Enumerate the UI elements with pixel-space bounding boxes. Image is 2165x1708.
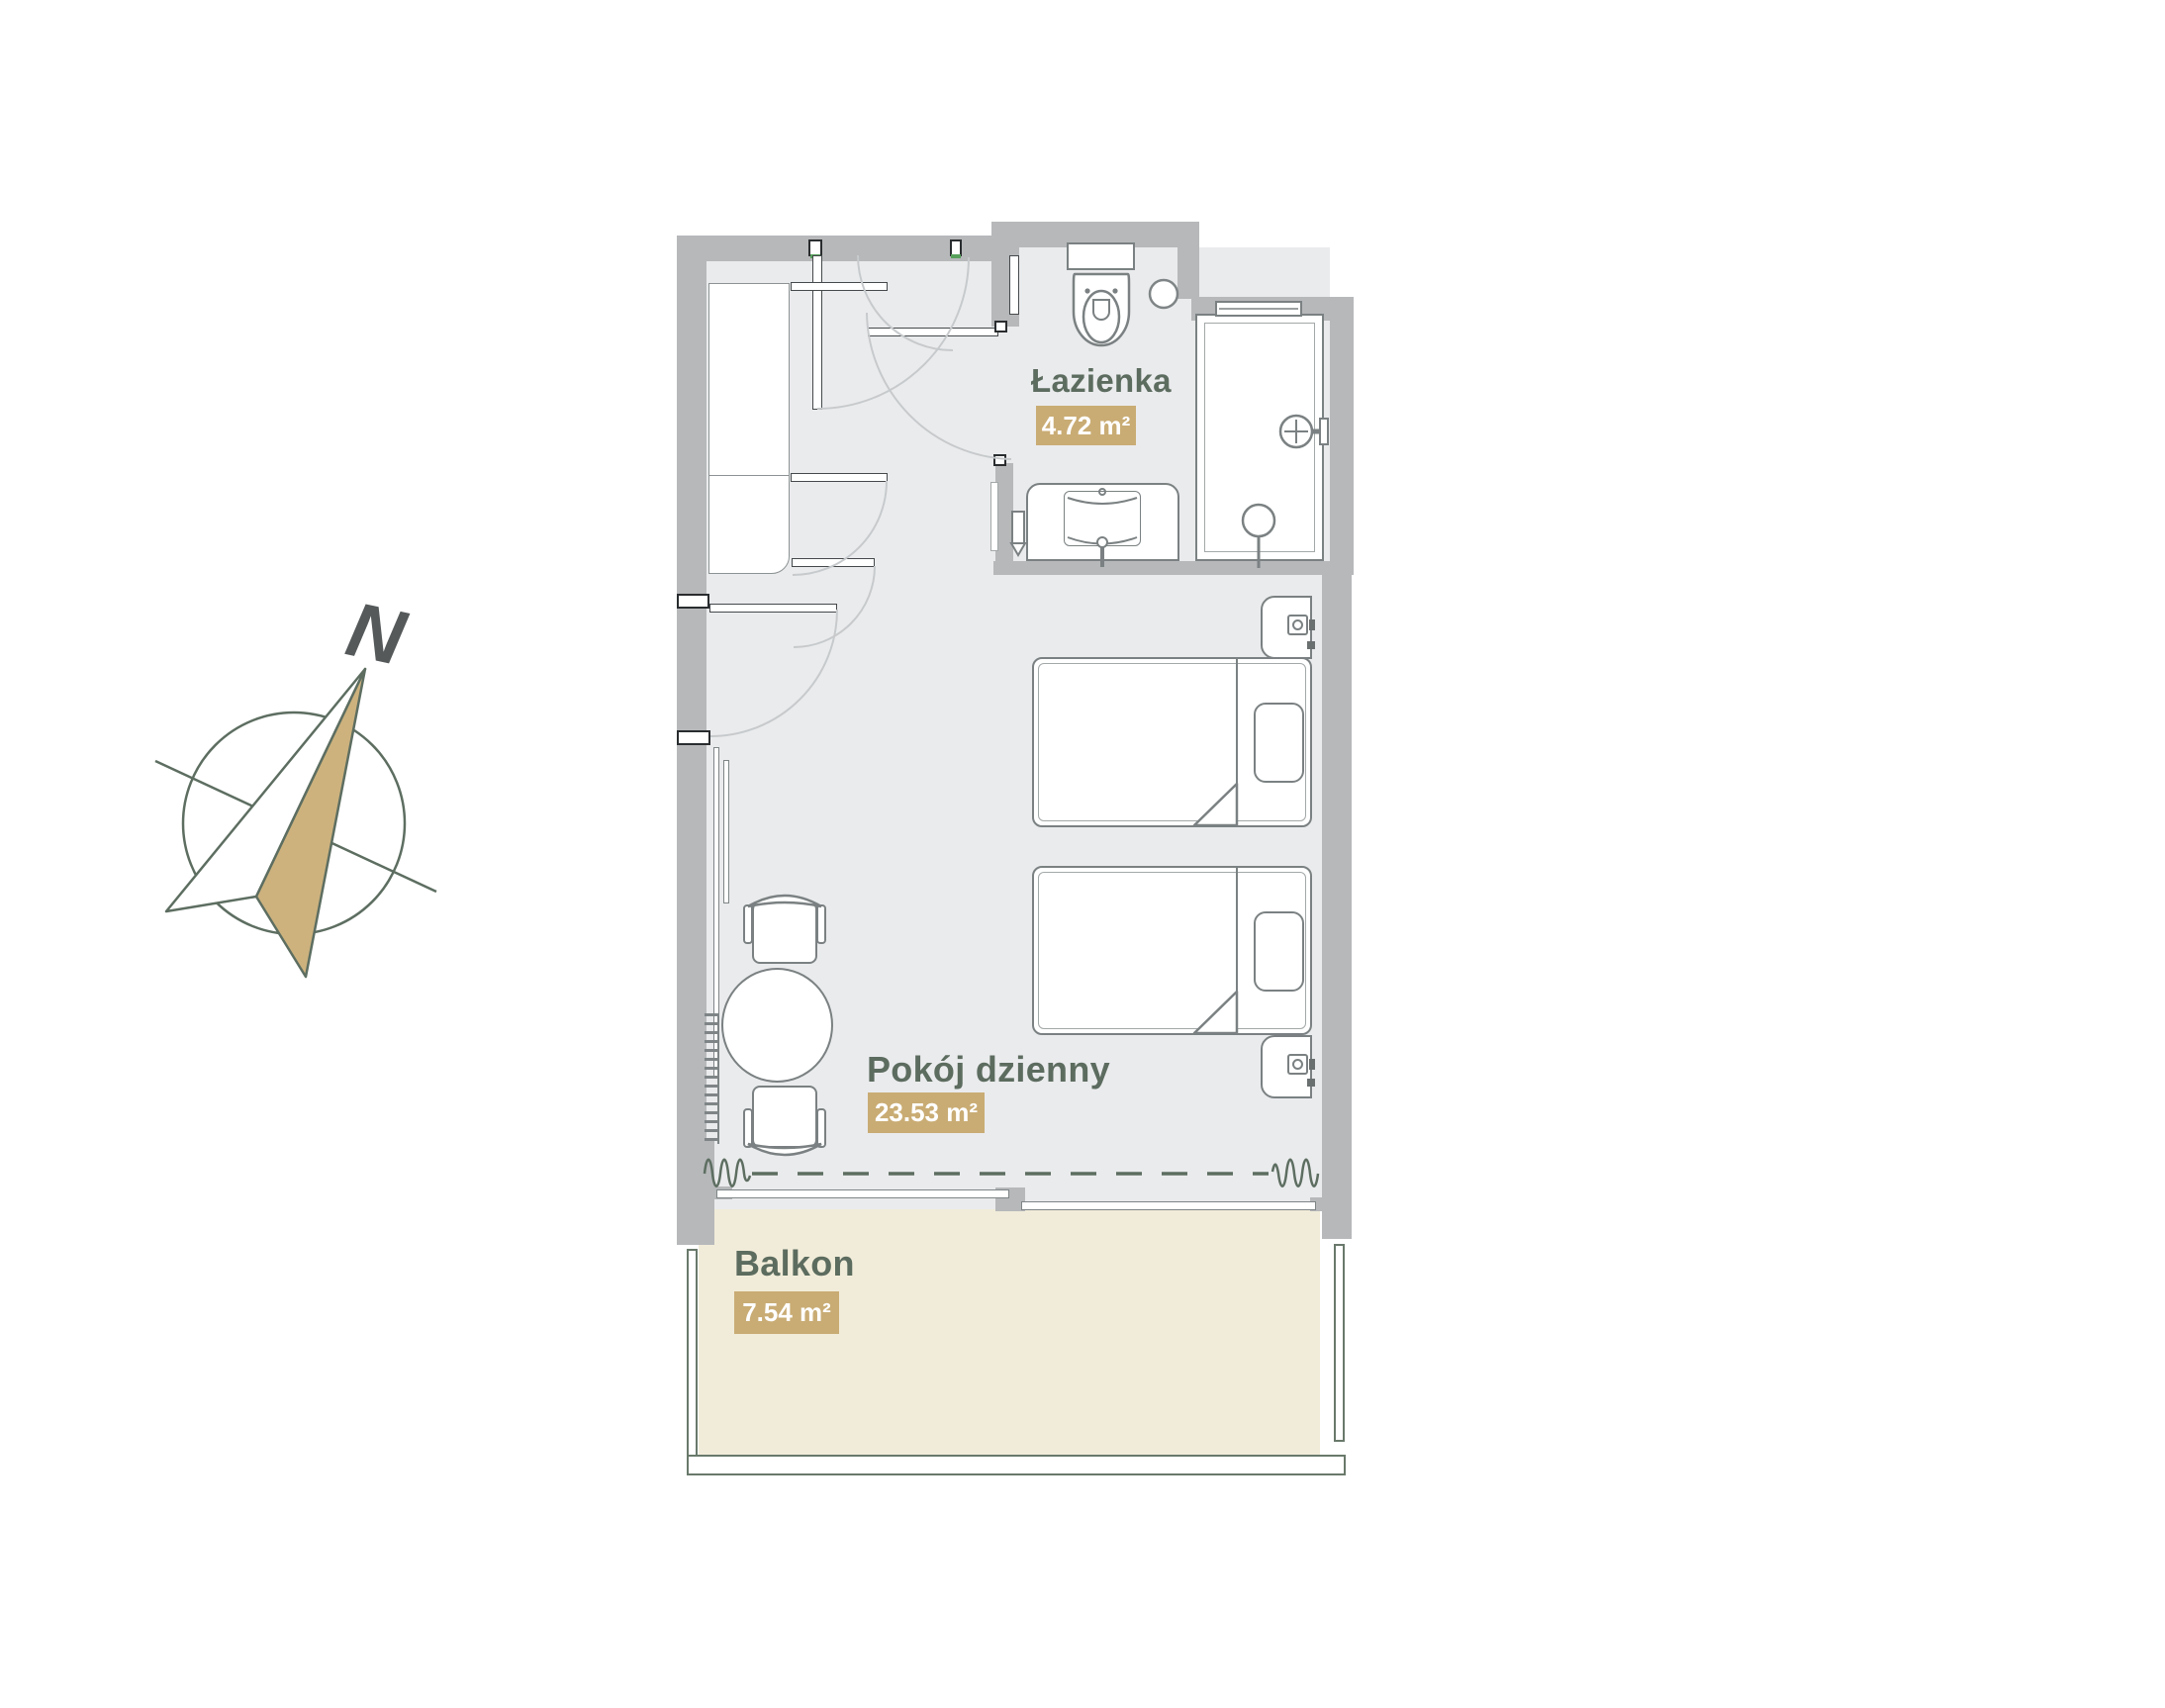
bathroom-door-stop <box>993 454 1006 466</box>
radiator <box>705 1013 719 1144</box>
chair-top-armrest-right <box>816 904 826 944</box>
compass-north-icon: N <box>155 585 436 977</box>
bed-2-divider <box>1236 868 1238 1033</box>
entrance-door-leaf <box>709 604 837 613</box>
shower-enclosure-inner <box>1204 323 1315 552</box>
chair-bottom-seat <box>752 1086 817 1148</box>
wall-left <box>677 236 706 1138</box>
bed-1-pillow <box>1254 703 1304 783</box>
balcony-label: Balkon <box>734 1243 855 1284</box>
wardrobe-door-leaf-c <box>791 473 888 482</box>
compass-north-label: N <box>339 585 414 682</box>
wardrobe-door-leaf-a <box>791 282 888 291</box>
nightstand-2 <box>1261 1035 1312 1098</box>
wardrobe-lower <box>708 475 790 574</box>
entrance-door-stop-top <box>677 594 709 609</box>
balcony-rail-left <box>687 1249 698 1459</box>
bed-2-pillow <box>1254 911 1304 992</box>
towel-radiator <box>1011 511 1025 544</box>
sliding-window-panel-right <box>1021 1201 1316 1210</box>
sliding-window-panel-left <box>716 1189 1009 1198</box>
hall-door-leaf-b <box>868 328 998 336</box>
bathroom-door-leaf-top <box>1009 255 1019 315</box>
bathroom-area-badge: 4.72 m² <box>1036 406 1136 445</box>
entrance-door-stop-bottom <box>677 730 710 745</box>
dining-table <box>721 968 833 1083</box>
chair-top-seat <box>752 901 817 964</box>
chair-bottom-armrest-right <box>816 1108 826 1148</box>
wardrobe-door-leaf-vertical <box>812 255 822 410</box>
toilet-cistern <box>1067 242 1135 270</box>
nightstand-1 <box>1261 596 1312 659</box>
balcony-rail-right <box>1334 1244 1345 1442</box>
balcony-rail-bottom <box>687 1455 1346 1475</box>
wall-shower-right <box>1330 297 1354 575</box>
wardrobe-door-leaf-d <box>792 558 875 567</box>
bathroom-door-leaf-open <box>990 482 998 551</box>
wall-right <box>1322 575 1352 1239</box>
bathroom-label: Łazienka <box>1031 362 1172 400</box>
wall-shelf-track-b <box>723 760 729 903</box>
balcony-area-badge: 7.54 m² <box>734 1291 839 1334</box>
floor-plan-canvas: Łazienka 4.72 m² Pokój dzienny 23.53 m² … <box>0 0 2165 1708</box>
wall-bathroom-bottom <box>993 561 1354 575</box>
bed-1-divider <box>1236 659 1238 825</box>
wardrobe-upper <box>708 283 790 477</box>
sink-basin <box>1064 491 1141 546</box>
door-sensor-tick-2 <box>951 254 961 258</box>
wall-shower-connector <box>1177 241 1199 299</box>
shower-glass-door <box>1215 301 1302 317</box>
living-room-area-badge: 23.53 m² <box>868 1092 985 1133</box>
door-stop-hall <box>994 321 1007 332</box>
living-room-label: Pokój dzienny <box>867 1049 1110 1091</box>
